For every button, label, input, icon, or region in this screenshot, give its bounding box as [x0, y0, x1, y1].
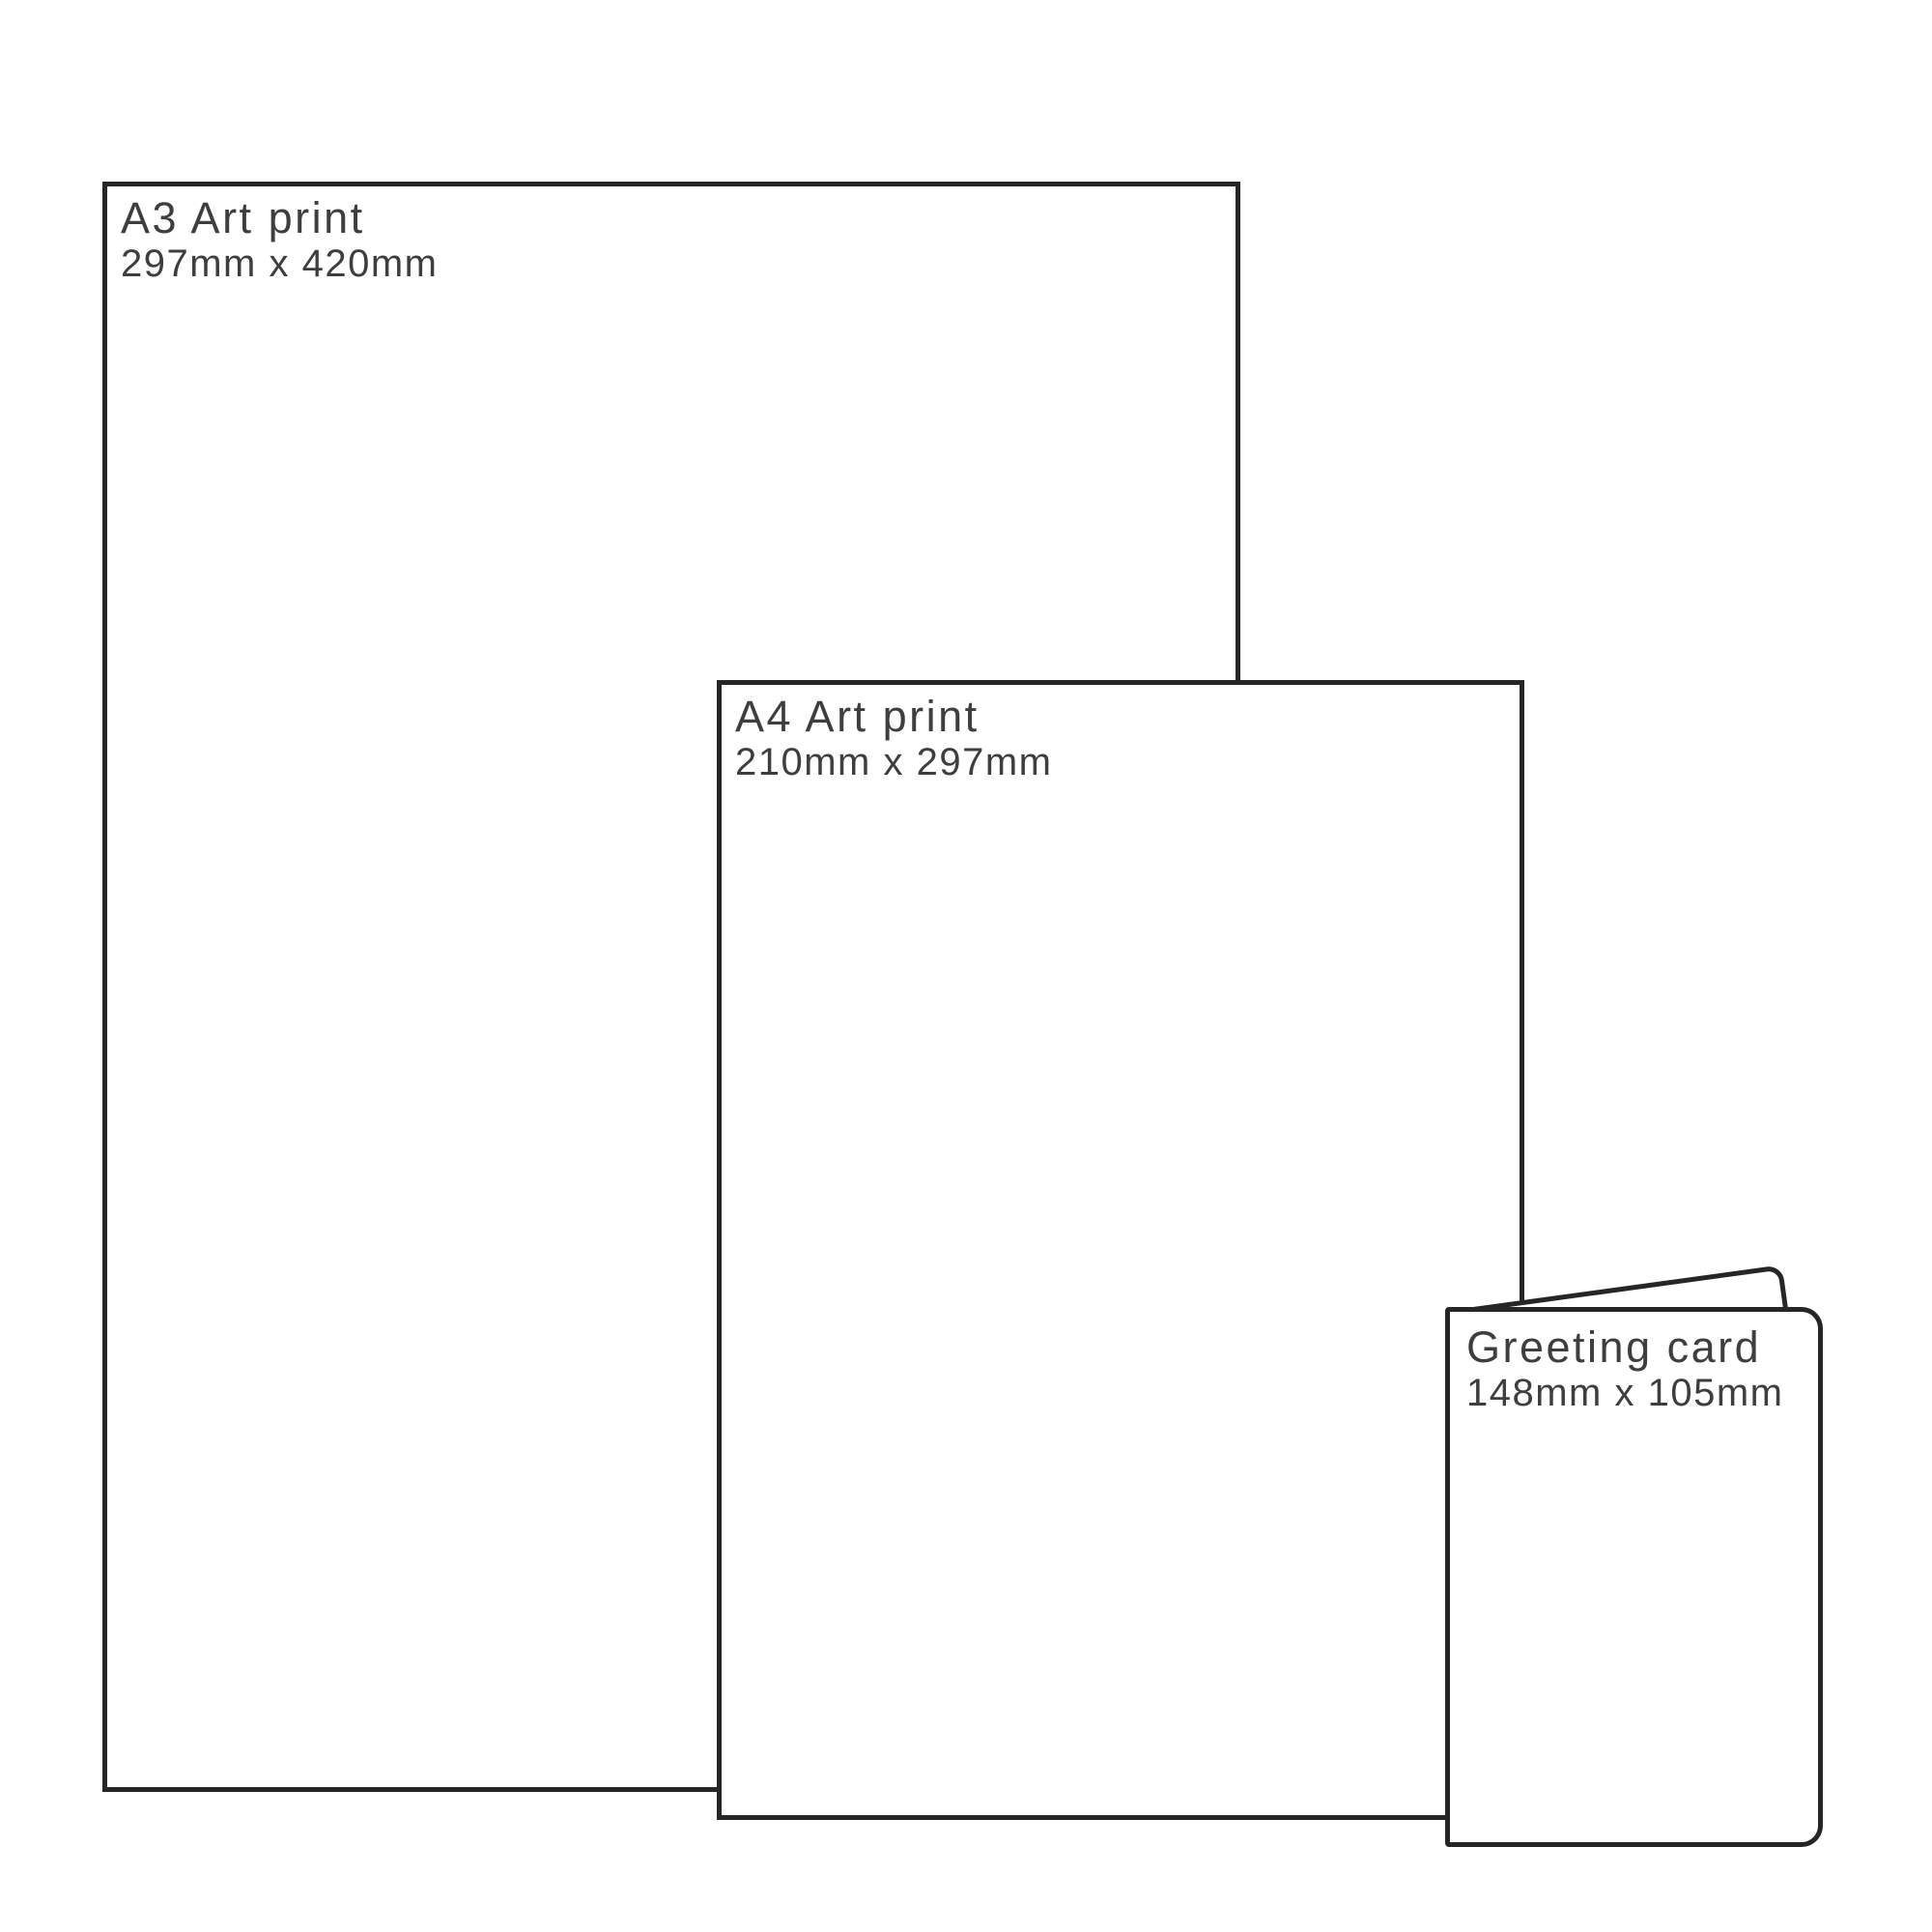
a4-print-outline: A4 Art print 210mm x 297mm	[717, 680, 1524, 1820]
a3-title: A3 Art print	[121, 194, 1226, 242]
a3-dimensions: 297mm x 420mm	[121, 242, 1226, 286]
greeting-card-title: Greeting card	[1466, 1323, 1810, 1372]
greeting-card-label: Greeting card 148mm x 105mm	[1450, 1312, 1818, 1415]
a4-title: A4 Art print	[735, 693, 1510, 741]
a4-dimensions: 210mm x 297mm	[735, 741, 1510, 784]
a3-label: A3 Art print 297mm x 420mm	[107, 186, 1236, 286]
a4-label: A4 Art print 210mm x 297mm	[722, 685, 1520, 784]
greeting-card-dimensions: 148mm x 105mm	[1466, 1372, 1810, 1415]
greeting-card-front: Greeting card 148mm x 105mm	[1445, 1307, 1823, 1847]
size-comparison-diagram: A3 Art print 297mm x 420mm A4 Art print …	[0, 0, 1932, 1932]
